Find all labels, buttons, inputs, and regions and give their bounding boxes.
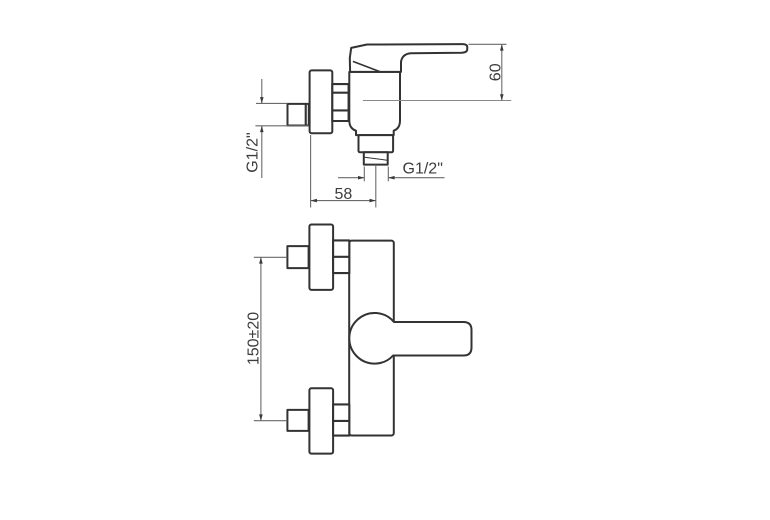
svg-text:G1/2": G1/2" xyxy=(403,160,443,177)
svg-text:58: 58 xyxy=(335,186,353,203)
svg-text:60: 60 xyxy=(488,63,505,81)
svg-text:G1/2": G1/2" xyxy=(245,132,262,172)
svg-text:150±20: 150±20 xyxy=(246,312,263,365)
